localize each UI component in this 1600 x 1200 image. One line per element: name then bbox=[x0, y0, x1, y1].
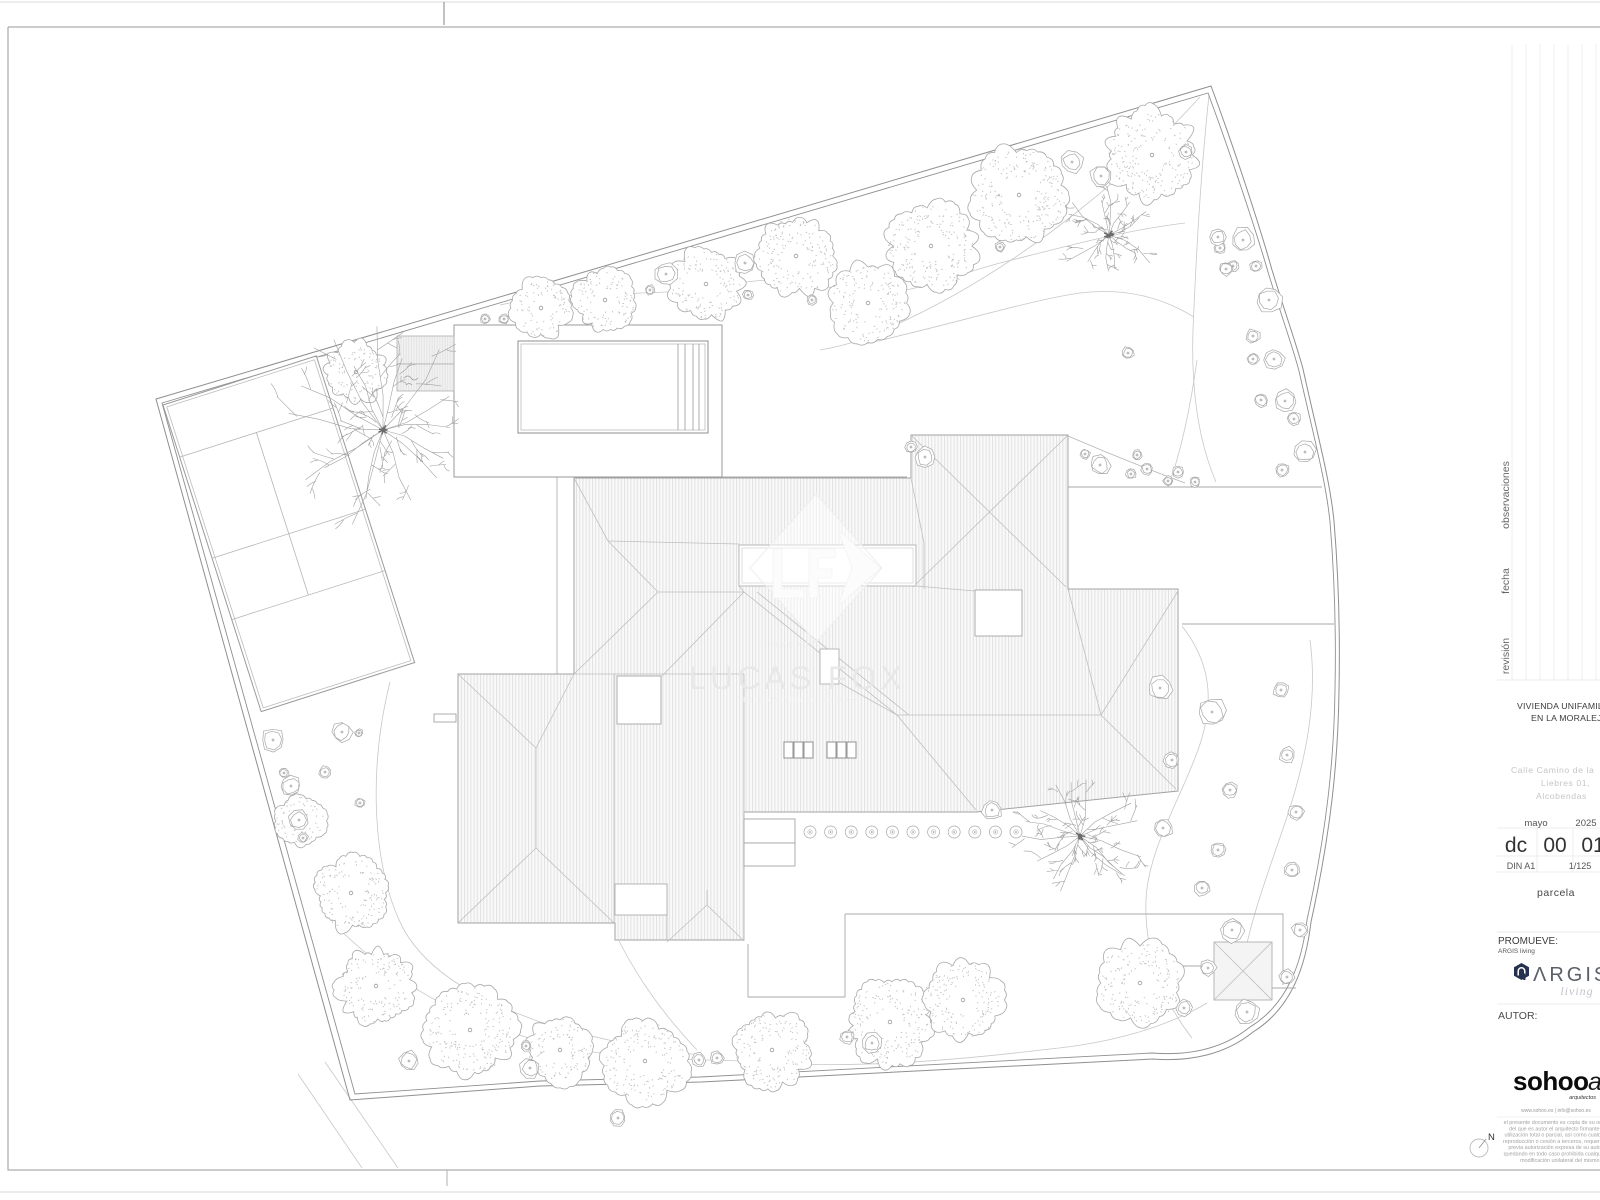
svg-text:EN LA MORALEJA: EN LA MORALEJA bbox=[1531, 713, 1600, 723]
svg-text:N: N bbox=[1488, 1132, 1495, 1143]
svg-text:DIN A1: DIN A1 bbox=[1507, 861, 1536, 871]
svg-text:el presente documento es copia: el presente documento es copia de su or bbox=[1504, 1120, 1600, 1126]
svg-text:observaciones: observaciones bbox=[1500, 461, 1512, 529]
svg-text:utilización total o parcial, a: utilización total o parcial, así como cu… bbox=[1505, 1133, 1600, 1139]
svg-text:00: 00 bbox=[1543, 834, 1566, 857]
svg-text:www.sohoo.es | info@sohoo.es: www.sohoo.es | info@sohoo.es bbox=[1521, 1108, 1591, 1114]
svg-text:01: 01 bbox=[1581, 834, 1600, 857]
svg-text:revisión: revisión bbox=[1500, 638, 1512, 674]
svg-text:Liebres 01,: Liebres 01, bbox=[1541, 778, 1590, 788]
svg-text:ΛRGIS: ΛRGIS bbox=[1533, 964, 1600, 986]
svg-text:INTERNATIONAL REALTY: INTERNATIONAL REALTY bbox=[743, 695, 857, 704]
svg-text:Alcobendas: Alcobendas bbox=[1536, 791, 1587, 801]
svg-text:living: living bbox=[1560, 984, 1593, 998]
svg-text:sohoo: sohoo bbox=[1513, 1066, 1589, 1096]
svg-text:LUCAS FOX: LUCAS FOX bbox=[688, 660, 905, 696]
svg-text:VIVIENDA UNIFAMILIAR: VIVIENDA UNIFAMILIAR bbox=[1517, 701, 1600, 711]
svg-text:mayo: mayo bbox=[1524, 818, 1547, 829]
svg-text:quedando en todo caso prohibid: quedando en todo caso prohibida cualqu bbox=[1504, 1152, 1600, 1158]
svg-text:parcela: parcela bbox=[1537, 887, 1575, 899]
svg-text:previa autorización expresa de: previa autorización expresa de su auto bbox=[1508, 1145, 1600, 1151]
svg-text:arquitectos: arquitectos bbox=[1569, 1095, 1596, 1101]
svg-text:modificación unilateral del mi: modificación unilateral del mismo. bbox=[1520, 1158, 1600, 1164]
svg-text:reproducción o cesión a tercer: reproducción o cesión a terceros, requer… bbox=[1503, 1139, 1600, 1145]
svg-text:AUTOR:: AUTOR: bbox=[1498, 1010, 1537, 1022]
svg-text:arq: arq bbox=[1588, 1068, 1600, 1096]
svg-text:del que es autor el arquitecto: del que es autor el arquitecto firmante, bbox=[1509, 1126, 1600, 1132]
svg-text:1/125: 1/125 bbox=[1569, 861, 1592, 871]
svg-text:Calle Camino de la: Calle Camino de la bbox=[1511, 765, 1594, 775]
svg-text:PROMUEVE:: PROMUEVE: bbox=[1498, 936, 1558, 947]
svg-text:LUCAS FOX: LUCAS FOX bbox=[763, 642, 816, 649]
svg-text:ARGIS living: ARGIS living bbox=[1498, 948, 1535, 955]
svg-text:dc: dc bbox=[1505, 834, 1527, 857]
svg-text:fecha: fecha bbox=[1500, 568, 1512, 594]
svg-text:2025: 2025 bbox=[1575, 818, 1596, 829]
